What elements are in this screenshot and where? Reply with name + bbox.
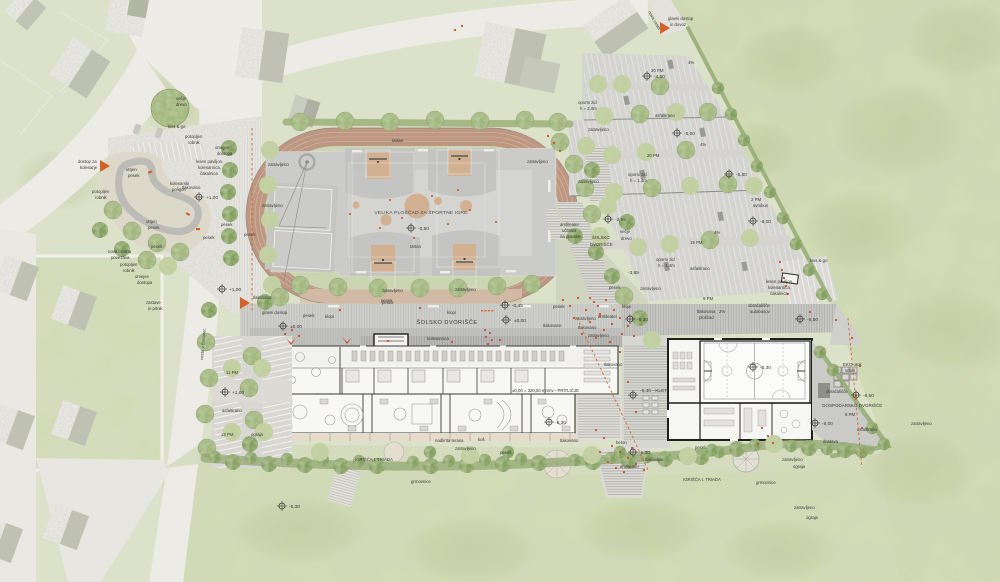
- svg-text:-6,50: -6,50: [863, 393, 874, 399]
- svg-text:pesek: pesek: [128, 173, 140, 178]
- svg-text:dostopa: dostopa: [137, 280, 153, 285]
- svg-text:GOSPODARSKO DVORIŠČE: GOSPODARSKO DVORIŠČE: [822, 402, 882, 408]
- svg-text:čakalnica: čakalnica: [770, 291, 789, 296]
- svg-text:-5,30: -5,30: [760, 365, 771, 371]
- svg-text:+1,00: +1,00: [232, 390, 244, 396]
- svg-text:pesek: pesek: [382, 300, 394, 305]
- svg-text:±0,00 = 320,50 mnmv - PRITLIČJ: ±0,00 = 320,50 mnmv - PRITLIČJE: [512, 388, 579, 393]
- svg-text:grmovnice: grmovnice: [756, 480, 776, 485]
- svg-text:zatravljeno: zatravljeno: [268, 162, 289, 167]
- svg-text:drevo: drevo: [176, 102, 187, 107]
- svg-text:20 PM: 20 PM: [647, 153, 660, 158]
- svg-text:kiss & go: kiss & go: [810, 258, 828, 263]
- svg-text:zatravljeno: zatravljeno: [575, 316, 596, 321]
- svg-text:nadkrita terasa: nadkrita terasa: [435, 438, 464, 443]
- svg-text:nova cestna: nova cestna: [108, 249, 132, 254]
- svg-text:13 PM: 13 PM: [221, 432, 234, 437]
- svg-text:večje: večje: [620, 229, 631, 234]
- svg-text:potopljen: potopljen: [120, 262, 138, 267]
- svg-text:pesek: pesek: [553, 304, 565, 309]
- svg-text:ŠOLSKO: ŠOLSKO: [592, 235, 610, 240]
- svg-text:obračališče: obračališče: [826, 389, 848, 394]
- svg-text:čakalnica: čakalnica: [200, 171, 219, 176]
- svg-text:-3,65: -3,65: [628, 270, 639, 276]
- svg-text:IGRIŠČA I. TRIADA: IGRIŠČA I. TRIADA: [683, 477, 721, 482]
- svg-text:omejev: omejev: [215, 145, 230, 150]
- svg-text:kolesarnica,: kolesarnica,: [198, 165, 221, 170]
- svg-text:grmovnice: grmovnice: [411, 479, 431, 484]
- svg-text:-6,00: -6,00: [760, 219, 771, 225]
- svg-text:zatravljeno: zatravljeno: [527, 159, 548, 164]
- svg-text:-2,65: -2,65: [615, 217, 626, 223]
- svg-text:tartan: tartan: [392, 138, 404, 143]
- svg-text:2 PM: 2 PM: [751, 197, 761, 202]
- svg-text:tlakovano: tlakovano: [578, 325, 597, 330]
- svg-text:zatravljeno: zatravljeno: [455, 287, 476, 292]
- svg-text:utrjen: utrjen: [126, 167, 137, 172]
- svg-text:tlakovano: tlakovano: [253, 295, 272, 300]
- svg-text:učilnica: učilnica: [562, 228, 577, 233]
- svg-text:pesek: pesek: [303, 313, 315, 318]
- svg-text:6 PM: 6 PM: [845, 412, 855, 417]
- svg-text:amfiteater: amfiteater: [560, 222, 580, 227]
- svg-text:večje: večje: [176, 96, 187, 101]
- svg-text:povezava: povezava: [111, 255, 130, 260]
- svg-text:zatravljeno: zatravljeno: [794, 505, 815, 510]
- svg-text:ograja: ograja: [793, 464, 806, 469]
- svg-text:tlakovana: tlakovana: [697, 309, 716, 314]
- svg-text:lesen paviljon,: lesen paviljon,: [196, 159, 223, 164]
- svg-text:in dovoz: in dovoz: [670, 22, 686, 27]
- svg-text:4%: 4%: [714, 230, 720, 235]
- svg-text:dostava: dostava: [823, 439, 839, 444]
- svg-text:robnik: robnik: [123, 268, 136, 273]
- svg-text:kolesarje: kolesarje: [80, 165, 98, 170]
- svg-text:19 PM: 19 PM: [690, 240, 703, 245]
- svg-text:oporni zid: oporni zid: [578, 100, 597, 105]
- svg-text:-6,50: -6,50: [807, 317, 818, 323]
- svg-text:h = 1,4m: h = 1,4m: [630, 178, 647, 183]
- svg-text:zatravljeno: zatravljeno: [578, 179, 599, 184]
- svg-text:asfaltirano: asfaltirano: [857, 427, 877, 432]
- svg-text:9 PM: 9 PM: [703, 296, 713, 301]
- svg-text:h = 2,0m: h = 2,0m: [580, 106, 597, 111]
- svg-text:-5,50: -5,50: [736, 172, 747, 178]
- svg-text:dostopa: dostopa: [217, 151, 233, 156]
- svg-text:zatravljeno: zatravljeno: [382, 288, 403, 293]
- svg-text:dostop za: dostop za: [78, 159, 97, 164]
- svg-text:zatravljeno: zatravljeno: [782, 457, 803, 462]
- svg-text:-5,30: -5,30: [289, 504, 300, 510]
- svg-text:kolesarnica,: kolesarnica,: [768, 285, 791, 290]
- svg-text:pesek: pesek: [500, 450, 512, 455]
- svg-text:tlakovano: tlakovano: [604, 362, 623, 367]
- svg-text:tlakovano: tlakovano: [560, 438, 579, 443]
- svg-text:zatravljeno: zatravljeno: [262, 203, 283, 208]
- svg-text:zatravljeno: zatravljeno: [640, 286, 661, 291]
- svg-text:tartan: tartan: [410, 244, 422, 249]
- svg-text:pesek: pesek: [151, 244, 163, 249]
- svg-text:autobusov: autobusov: [750, 309, 771, 314]
- svg-text:ŠOLSKO DVORIŠČE: ŠOLSKO DVORIŠČE: [416, 319, 477, 326]
- svg-text:ograja: ograja: [251, 432, 264, 437]
- svg-text:20 PM: 20 PM: [651, 68, 664, 73]
- svg-text:drevo: drevo: [621, 236, 632, 241]
- svg-text:glavni dostop: glavni dostop: [262, 310, 288, 315]
- svg-text:oporni zid: oporni zid: [656, 257, 675, 262]
- svg-text:utrjen: utrjen: [146, 219, 157, 224]
- svg-text:pesek: pesek: [221, 222, 233, 227]
- svg-text:in pitnik: in pitnik: [148, 306, 163, 311]
- svg-text:kiss & go: kiss & go: [168, 124, 186, 129]
- svg-text:VELIKA PLOŠČAD ZA ŠPORTNE IGRE: VELIKA PLOŠČAD ZA ŠPORTNE IGRE: [374, 209, 468, 216]
- svg-text:pesek: pesek: [695, 445, 707, 450]
- svg-text:obračališče: obračališče: [748, 303, 770, 308]
- svg-text:tlakovano: tlakovano: [645, 457, 664, 462]
- svg-text:2%: 2%: [719, 309, 725, 314]
- svg-text:oporni zid: oporni zid: [628, 172, 647, 177]
- svg-text:koš: koš: [478, 437, 485, 442]
- svg-text:-0,45: -0,45: [512, 303, 523, 309]
- svg-text:-6,00: -6,00: [822, 421, 833, 427]
- svg-text:-4,50: -4,50: [654, 74, 665, 80]
- svg-text:+1,00: +1,00: [229, 287, 241, 293]
- svg-text:zastave: zastave: [146, 300, 161, 305]
- svg-text:asfaltirano: asfaltirano: [655, 113, 675, 118]
- svg-text:asfaltirano: asfaltirano: [690, 266, 710, 271]
- svg-text:klopi: klopi: [622, 304, 631, 309]
- svg-text:±0,00: ±0,00: [514, 318, 526, 324]
- svg-text:ograja: ograja: [806, 515, 819, 520]
- svg-text:4%: 4%: [688, 60, 694, 65]
- svg-text:potopljen: potopljen: [92, 189, 110, 194]
- svg-text:lesen paviljon,: lesen paviljon,: [766, 279, 793, 284]
- svg-text:potopljen: potopljen: [185, 134, 203, 139]
- svg-text:pesek: pesek: [244, 232, 256, 237]
- svg-text:klopi: klopi: [447, 310, 456, 315]
- svg-text:pesek: pesek: [148, 225, 160, 230]
- svg-text:robnik: robnik: [95, 195, 108, 200]
- svg-text:glavni dostop: glavni dostop: [668, 16, 694, 21]
- svg-text:avtobus: avtobus: [753, 203, 768, 208]
- svg-text:ploščad: ploščad: [699, 315, 714, 320]
- svg-text:+1,00: +1,00: [206, 195, 218, 201]
- svg-text:zatravljeno: zatravljeno: [455, 446, 476, 451]
- svg-text:na prostem: na prostem: [560, 234, 582, 239]
- svg-text:DVORIŠČE: DVORIŠČE: [590, 242, 613, 247]
- svg-text:tlakovano: tlakovano: [182, 185, 201, 190]
- svg-text:asfaltirano: asfaltirano: [222, 408, 242, 413]
- svg-text:zatravljeno: zatravljeno: [588, 127, 609, 132]
- svg-text:kolesarnica: kolesarnica: [427, 336, 449, 341]
- svg-text:zatravljeno: zatravljeno: [911, 421, 932, 426]
- svg-text:pesek: pesek: [203, 235, 215, 240]
- svg-text:-5,30: -5,30: [555, 420, 566, 426]
- svg-text:zatravljeno: zatravljeno: [588, 333, 609, 338]
- svg-text:11 PM: 11 PM: [226, 370, 239, 375]
- svg-text:-5,00: -5,00: [684, 131, 695, 137]
- svg-text:beton: beton: [616, 440, 627, 445]
- svg-text:smeti: smeti: [845, 368, 855, 373]
- svg-text:pesek: pesek: [609, 285, 621, 290]
- svg-text:-0,50: -0,50: [418, 226, 429, 232]
- svg-text:-5,30 - KLET: -5,30 - KLET: [640, 388, 667, 394]
- svg-text:tlakovano: tlakovano: [543, 323, 562, 328]
- svg-text:-5,30: -5,30: [637, 317, 648, 323]
- svg-text:4%: 4%: [700, 142, 706, 147]
- svg-text:klopi: klopi: [325, 314, 334, 319]
- svg-text:omejev: omejev: [135, 274, 150, 279]
- svg-text:IGRIŠČA I. TRIADA: IGRIŠČA I. TRIADA: [355, 457, 393, 462]
- svg-text:robnik: robnik: [188, 140, 201, 145]
- svg-text:h = 1,4m: h = 1,4m: [658, 263, 675, 268]
